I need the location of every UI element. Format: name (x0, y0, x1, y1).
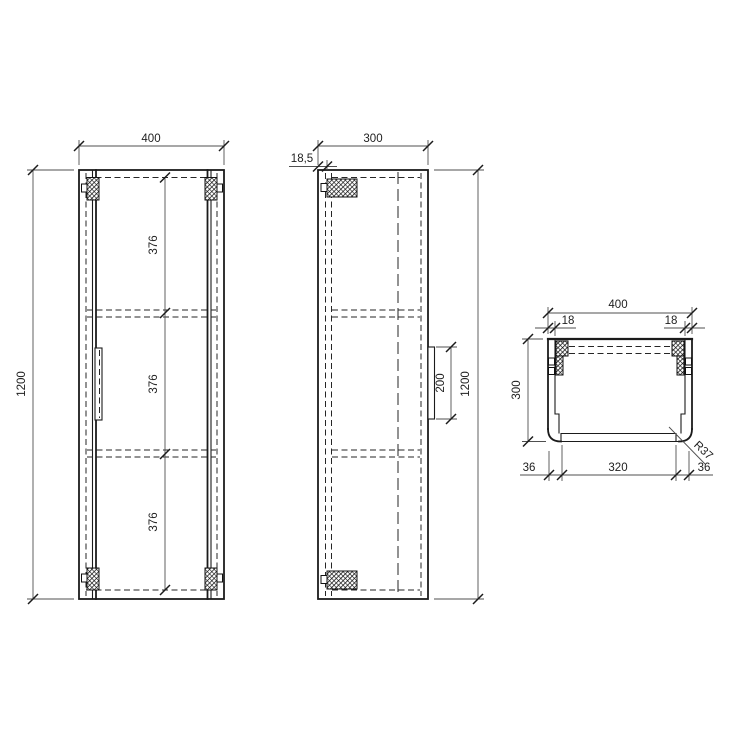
dimension-front-width: 400 (74, 133, 229, 165)
dim-top-front-left-label: 36 (523, 462, 536, 474)
side-cabinet-outline (318, 170, 428, 599)
dim-front-spacing-2-label: 376 (148, 374, 160, 393)
front-shelf-2 (87, 450, 216, 457)
hinge-symbol-front-bottom-right (205, 568, 223, 590)
dimension-front-height: 1200 (16, 165, 74, 604)
dimension-top-front-chain: 36 320 36 (520, 445, 713, 481)
wall-bracket-symbol-side-top (321, 179, 357, 197)
side-door-handle (428, 347, 435, 419)
front-view: 400 1200 376 376 376 (16, 133, 229, 604)
dim-front-width-label: 400 (141, 133, 160, 145)
dim-front-spacing-1-label: 376 (148, 235, 160, 254)
dim-top-door-width-label: 320 (608, 462, 627, 474)
dimension-front-shelf-spacing: 376 376 376 (148, 173, 170, 596)
hinge-symbol-front-top-right (205, 178, 223, 201)
dim-front-spacing-3-label: 376 (148, 512, 160, 531)
dimension-side-handle-length: 200 (435, 342, 457, 424)
dimension-side-depth: 300 (313, 133, 433, 165)
technical-drawing-page: 400 1200 376 376 376 (0, 0, 740, 740)
side-shelf-2 (332, 450, 420, 457)
top-door-panel (561, 434, 679, 442)
dim-side-rail-thickness-label: 18,5 (291, 153, 313, 165)
dim-side-height-label: 1200 (460, 371, 472, 397)
hinge-plate-symbol-top-left (549, 341, 569, 375)
hinge-plate-symbol-top-right (672, 341, 692, 375)
dim-side-depth-label: 300 (363, 133, 382, 145)
dimension-side-rail-thickness: 18,5 (289, 153, 337, 172)
dim-top-depth-label: 300 (511, 380, 523, 399)
side-shelf-1 (332, 310, 420, 317)
dim-side-handle-length-label: 200 (435, 373, 447, 392)
hinge-symbol-front-bottom-left (82, 568, 100, 590)
front-door-handle (95, 348, 102, 420)
dim-top-corner-radius-label: R37 (691, 439, 715, 462)
dimension-top-depth: 300 (511, 334, 546, 447)
hinge-symbol-front-top-left (82, 178, 100, 201)
dim-top-panel-left-label: 18 (562, 315, 575, 327)
dim-top-width-label: 400 (608, 299, 627, 311)
dimension-top-panel-left: 18 (535, 315, 576, 336)
wall-bracket-symbol-side-bottom (321, 571, 357, 589)
dim-top-front-right-label: 36 (698, 462, 711, 474)
dim-front-height-label: 1200 (16, 371, 28, 397)
dim-top-panel-right-label: 18 (665, 315, 678, 327)
front-shelf-1 (87, 310, 216, 317)
cabinet-drawing: 400 1200 376 376 376 (0, 0, 740, 740)
dimension-top-panel-right: 18 (664, 315, 705, 336)
top-view: 400 18 18 300 (511, 299, 715, 481)
side-view: 300 18,5 200 1200 (289, 133, 484, 604)
